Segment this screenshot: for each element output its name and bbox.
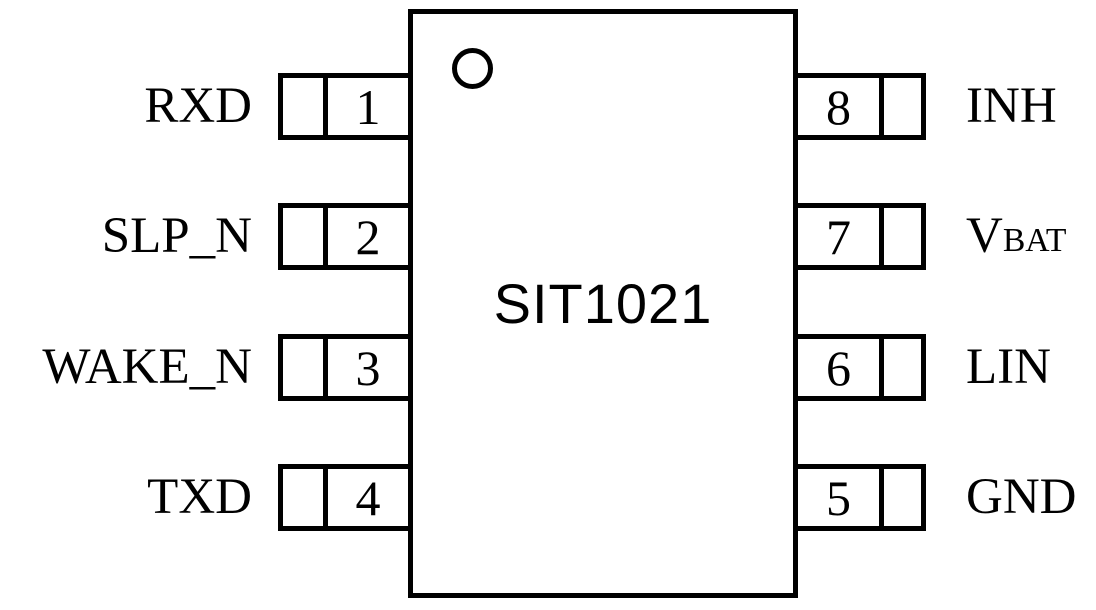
- pin-number-7: 7: [798, 208, 879, 265]
- pin-box-7: 7: [798, 203, 926, 270]
- pinout-diagram: SIT1021 RXD SLP_N WAKE_N TXD 1 2 3 4 8 7…: [0, 0, 1096, 610]
- pin-label-inh: INH: [966, 73, 1096, 140]
- pin-pad: [884, 469, 921, 526]
- pin-pad: [283, 208, 323, 265]
- pin-box-3: 3: [278, 334, 408, 401]
- chip-outline: SIT1021: [408, 9, 798, 598]
- pin-pad: [283, 339, 323, 396]
- pin-box-8: 8: [798, 73, 926, 140]
- pin-label-slp-n: SLP_N: [0, 203, 252, 270]
- pin-box-6: 6: [798, 334, 926, 401]
- pin-box-1: 1: [278, 73, 408, 140]
- pin-label-rxd: RXD: [0, 73, 252, 140]
- pin-number-2: 2: [328, 208, 408, 265]
- pin-box-2: 2: [278, 203, 408, 270]
- pin-number-8: 8: [798, 78, 879, 135]
- pin1-indicator-icon: [452, 48, 493, 89]
- pin-label-lin: LIN: [966, 334, 1096, 401]
- pin-label-gnd: GND: [966, 464, 1096, 531]
- pin-number-5: 5: [798, 469, 879, 526]
- pin-box-5: 5: [798, 464, 926, 531]
- pin-label-txd: TXD: [0, 464, 252, 531]
- pin-label-vbat-base: V: [966, 211, 1003, 262]
- pin-label-vbat: VBAT: [966, 203, 1096, 270]
- pin-pad: [884, 208, 921, 265]
- pin-number-6: 6: [798, 339, 879, 396]
- pin-pad: [884, 339, 921, 396]
- chip-name: SIT1021: [494, 271, 713, 336]
- pin-number-1: 1: [328, 78, 408, 135]
- pin-number-4: 4: [328, 469, 408, 526]
- pin-number-3: 3: [328, 339, 408, 396]
- pin-pad: [884, 78, 921, 135]
- pin-label-wake-n: WAKE_N: [0, 334, 252, 401]
- pin-box-4: 4: [278, 464, 408, 531]
- pin-pad: [283, 78, 323, 135]
- pin-pad: [283, 469, 323, 526]
